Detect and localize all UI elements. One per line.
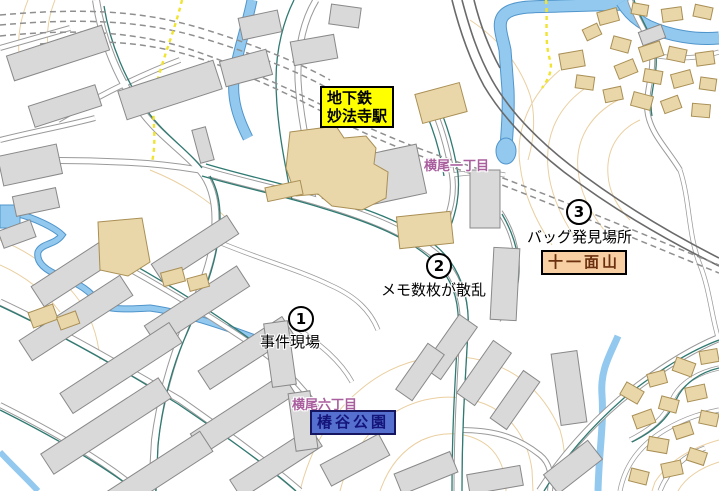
basemap-svg xyxy=(0,0,719,491)
map-canvas[interactable]: 地下鉄 妙法寺駅 横尾一丁目 横尾六丁目 1 事件現場 2 メモ数枚が散乱 3 … xyxy=(0,0,719,491)
